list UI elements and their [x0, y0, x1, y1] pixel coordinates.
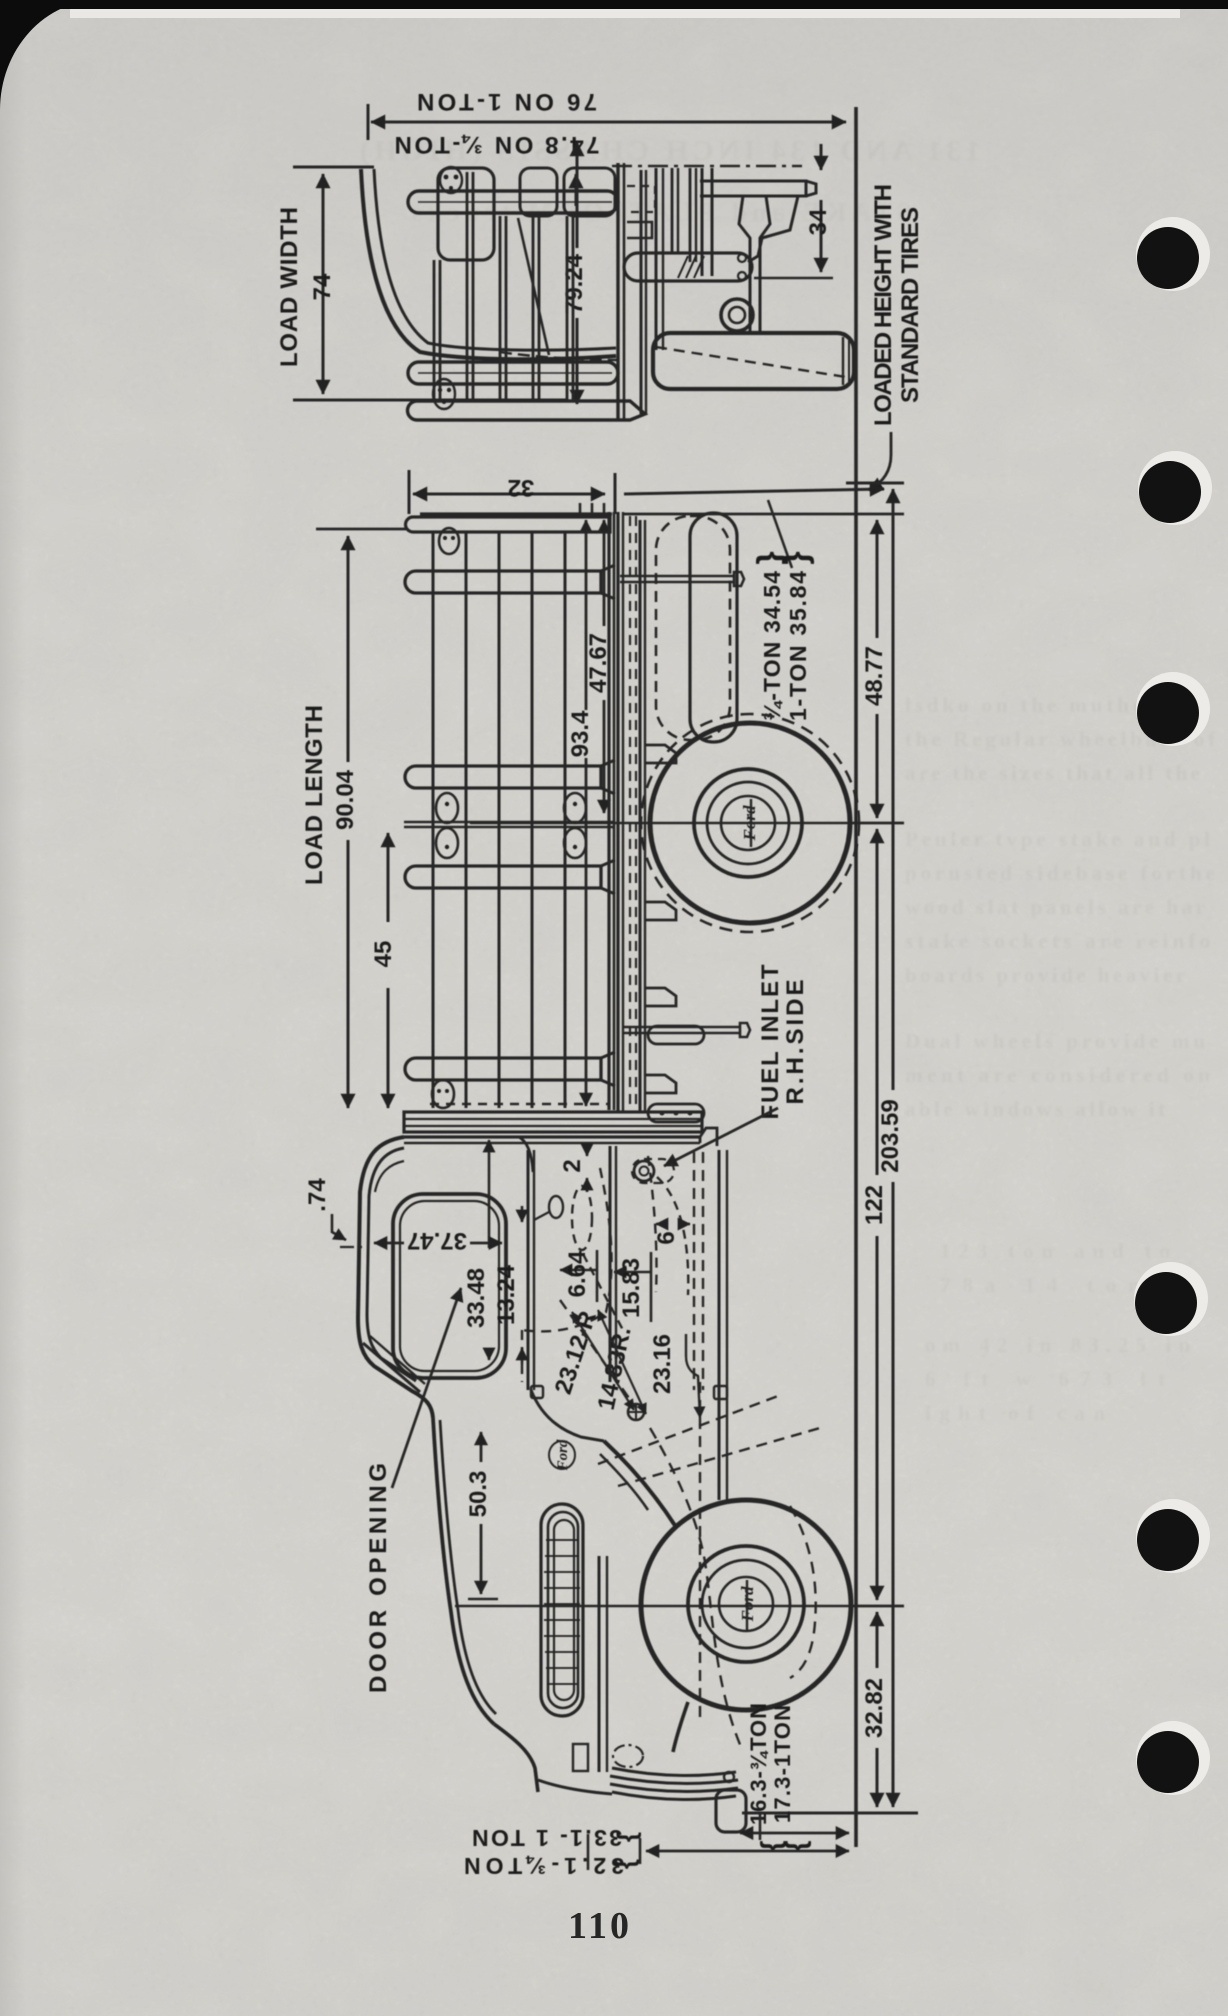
svg-text:122: 122 [861, 1185, 888, 1225]
svg-text:¾-TON 34.54: ¾-TON 34.54 [759, 571, 785, 721]
svg-text:37.47: 37.47 [407, 1227, 467, 1254]
svg-text:23.16: 23.16 [649, 1334, 676, 1394]
svg-text:6: 6 [653, 1231, 680, 1244]
svg-text:33.48: 33.48 [463, 1268, 490, 1328]
svg-text:79.24: 79.24 [561, 253, 588, 314]
svg-text:.74: .74 [304, 1178, 331, 1212]
svg-text:STANDARD TIRES: STANDARD TIRES [897, 207, 924, 403]
svg-text:}: } [614, 1859, 644, 1869]
svg-text:33.1- 1 TON: 33.1- 1 TON [472, 1825, 622, 1851]
svg-text:stake sockets are reinfo: stake sockets are reinfo [905, 929, 1210, 953]
svg-text:110: 110 [568, 1905, 632, 1947]
svg-text:FUEL INLET: FUEL INLET [757, 964, 784, 1119]
svg-text:DOOR OPENING: DOOR OPENING [365, 1463, 392, 1693]
svg-text:34: 34 [805, 208, 832, 235]
svg-text:2: 2 [559, 1159, 586, 1172]
svg-text:13.24: 13.24 [493, 1264, 520, 1325]
svg-text:}: } [777, 551, 815, 564]
svg-text:LOADED HEIGHT WITH: LOADED HEIGHT WITH [870, 184, 897, 426]
svg-text:76 ON 1-TON: 76 ON 1-TON [417, 88, 597, 115]
svg-text:32.82: 32.82 [861, 1678, 888, 1738]
svg-text:90.04: 90.04 [332, 769, 359, 830]
svg-text:32: 32 [508, 474, 535, 501]
svg-text:17.3-1TON: 17.3-1TON [770, 1705, 795, 1823]
svg-text:93.4: 93.4 [567, 710, 594, 757]
svg-text:6.64: 6.64 [564, 1250, 591, 1297]
svg-text:48.77: 48.77 [861, 646, 888, 706]
svg-text:15.83: 15.83 [618, 1258, 645, 1318]
svg-text:}: } [616, 1832, 646, 1842]
svg-text:LOAD WIDTH: LOAD WIDTH [276, 207, 303, 367]
svg-text:74: 74 [309, 273, 336, 300]
svg-text:32.1-¾TON: 32.1-¾TON [464, 1853, 624, 1879]
svg-text:203.59: 203.59 [877, 1099, 904, 1172]
svg-text:LOAD LENGTH: LOAD LENGTH [301, 705, 328, 885]
svg-text:16.3-¾TON: 16.3-¾TON [746, 1703, 771, 1825]
svg-text:50.3: 50.3 [465, 1471, 492, 1518]
svg-text:45: 45 [370, 941, 397, 968]
